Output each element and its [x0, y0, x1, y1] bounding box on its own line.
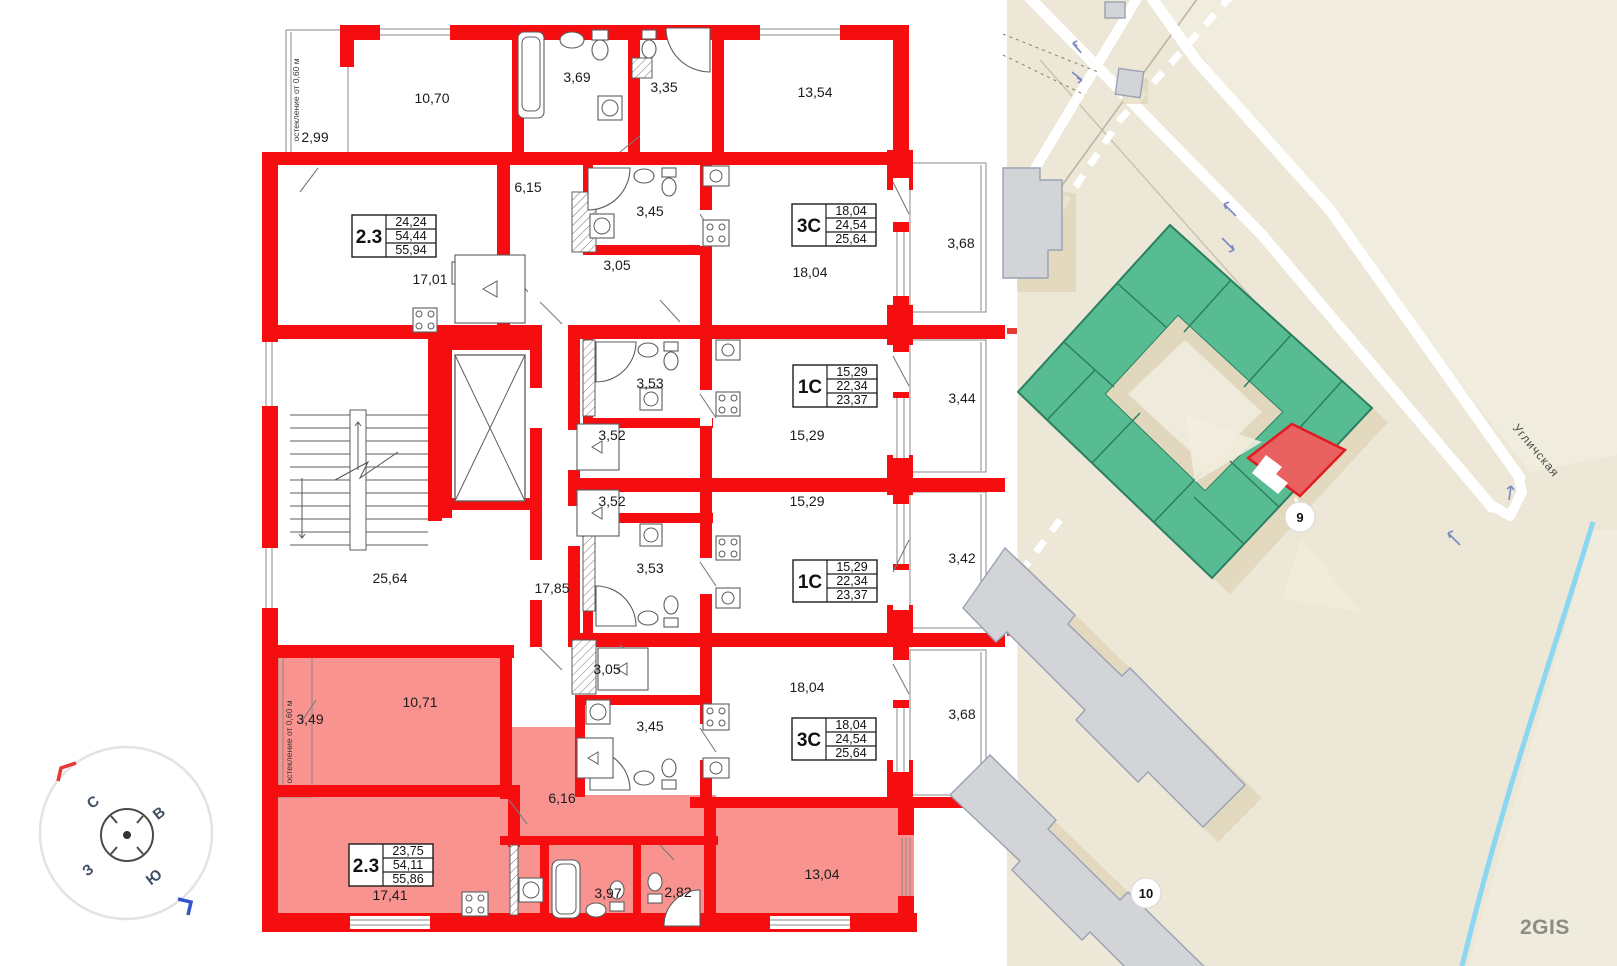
- room-label: 18,04: [792, 264, 827, 280]
- apartment-stamp-selected: 2.3 23,75 54,11 55,86: [349, 844, 433, 886]
- svg-text:24,24: 24,24: [395, 215, 426, 229]
- svg-text:55,86: 55,86: [392, 872, 423, 886]
- marker-10[interactable]: 10: [1131, 878, 1161, 908]
- room-label: 13,04: [804, 866, 839, 882]
- room-label: 2,99: [301, 129, 328, 145]
- compass-east: В: [150, 803, 169, 823]
- room-label: 3,68: [947, 235, 974, 251]
- svg-text:54,44: 54,44: [395, 229, 426, 243]
- room-label: 3,52: [598, 493, 625, 509]
- room-label: 3,45: [636, 203, 663, 219]
- stairwell: [290, 410, 428, 550]
- room-label: 18,04: [789, 679, 824, 695]
- svg-text:10: 10: [1139, 886, 1153, 901]
- svg-text:3С: 3С: [797, 730, 822, 751]
- room-label: 3,45: [636, 718, 663, 734]
- svg-text:18,04: 18,04: [835, 718, 866, 732]
- room-label: 3,53: [636, 560, 663, 576]
- room-label: 3,49: [296, 711, 323, 727]
- room-label: 17,41: [372, 887, 407, 903]
- room-label: 15,29: [789, 493, 824, 509]
- room-label: 2,82: [664, 884, 691, 900]
- room-label: 3,05: [593, 661, 620, 677]
- 2gis-watermark: 2GIS: [1520, 916, 1570, 939]
- svg-text:25,64: 25,64: [835, 232, 866, 246]
- svg-text:1С: 1С: [798, 377, 823, 398]
- apartment-stamp: 2.3 24,24 54,44 55,94: [352, 215, 436, 257]
- elevator: [455, 355, 525, 501]
- svg-text:24,54: 24,54: [835, 218, 866, 232]
- screenshot-root: 2,99 10,70 3,69 3,35 13,54 6,15 3,45 3,0…: [0, 0, 1617, 966]
- room-label: 10,71: [402, 694, 437, 710]
- room-label: 17,01: [412, 271, 447, 287]
- room-label: 3,44: [948, 390, 975, 406]
- room-label: 17,85: [534, 580, 569, 596]
- svg-text:55,94: 55,94: [395, 243, 426, 257]
- apartment-stamp: 1С 15,29 22,34 23,37: [793, 365, 877, 407]
- room-label: 6,16: [548, 790, 575, 806]
- svg-text:2.3: 2.3: [356, 227, 382, 248]
- apartment-stamp: 3С 18,04 24,54 25,64: [792, 718, 876, 760]
- room-label: 3,05: [603, 257, 630, 273]
- svg-text:23,37: 23,37: [836, 393, 867, 407]
- room-label: 3,69: [563, 69, 590, 85]
- room-label: 25,64: [372, 570, 407, 586]
- svg-text:22,34: 22,34: [836, 379, 867, 393]
- svg-text:23,75: 23,75: [392, 844, 423, 858]
- room-label: 10,70: [414, 90, 449, 106]
- glazing-note-bottom: остекление от 0,60 м: [284, 700, 294, 783]
- apartment-stamp: 3С 18,04 24,54 25,64: [792, 204, 876, 246]
- svg-text:18,04: 18,04: [835, 204, 866, 218]
- room-label: 3,68: [948, 706, 975, 722]
- floor-plan: 2,99 10,70 3,69 3,35 13,54 6,15 3,45 3,0…: [40, 25, 1005, 932]
- marker-9[interactable]: 9: [1285, 502, 1315, 532]
- svg-text:1С: 1С: [798, 572, 823, 593]
- map[interactable]: 9 10 Угличская 2GIS: [950, 0, 1617, 966]
- svg-text:22,34: 22,34: [836, 574, 867, 588]
- compass: С В З Ю: [40, 747, 212, 919]
- svg-text:3С: 3С: [797, 216, 822, 237]
- svg-text:23,37: 23,37: [836, 588, 867, 602]
- room-label: 3,97: [594, 885, 621, 901]
- room-label: 3,35: [650, 79, 677, 95]
- apartment-stamp: 1С 15,29 22,34 23,37: [793, 560, 877, 602]
- compass-west: З: [79, 861, 97, 880]
- room-label: 15,29: [789, 427, 824, 443]
- svg-text:9: 9: [1296, 510, 1303, 525]
- compass-north: С: [84, 792, 103, 812]
- glazing-note-top: остекление от 0,60 м: [291, 58, 301, 141]
- room-label: 13,54: [797, 84, 832, 100]
- svg-text:25,64: 25,64: [835, 746, 866, 760]
- compass-south: Ю: [143, 866, 166, 889]
- svg-text:2.3: 2.3: [353, 856, 379, 877]
- svg-text:54,11: 54,11: [393, 858, 423, 872]
- room-label: 3,52: [598, 427, 625, 443]
- svg-text:15,29: 15,29: [836, 365, 867, 379]
- room-label: 6,15: [514, 179, 541, 195]
- room-label: 3,42: [948, 550, 975, 566]
- svg-text:24,54: 24,54: [835, 732, 866, 746]
- room-label: 3,53: [636, 375, 663, 391]
- svg-text:15,29: 15,29: [836, 560, 867, 574]
